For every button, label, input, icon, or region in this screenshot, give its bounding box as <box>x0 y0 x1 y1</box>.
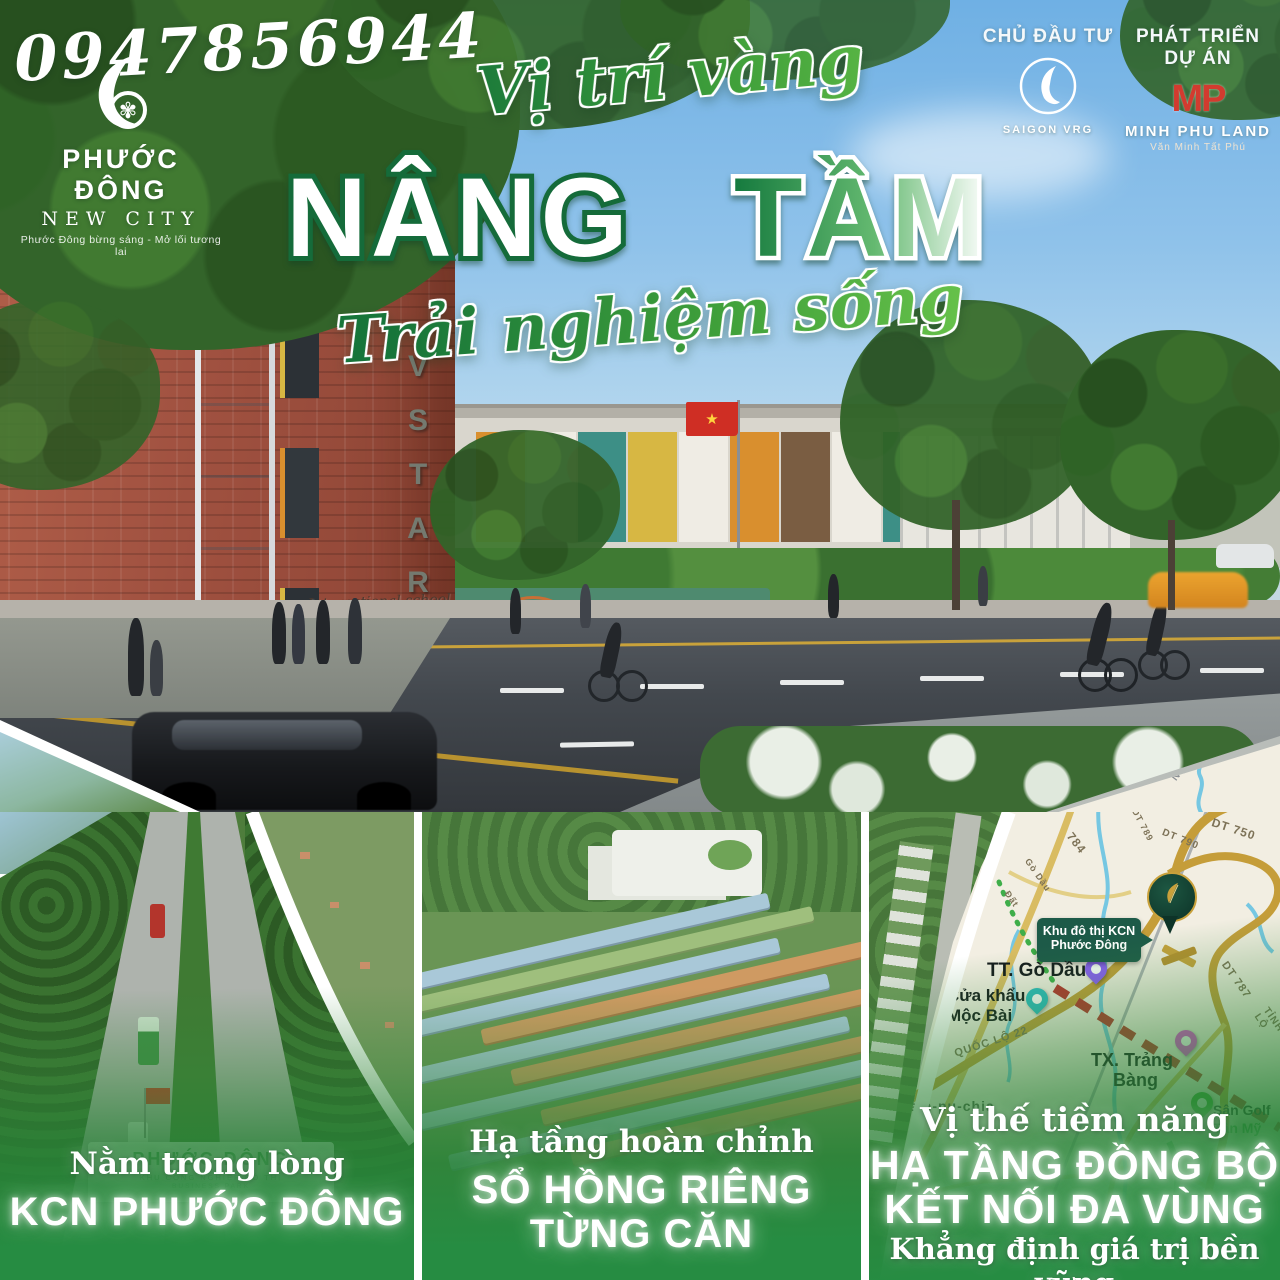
panel-sohong: Hạ tầng hoàn chỉnh SỔ HỒNG RIÊNG TỪNG CĂ… <box>422 812 861 1280</box>
panel-map: 784 DT 789 DT 790 DT 750 DT 787 QUỐC LỘ … <box>869 812 1280 1280</box>
poster: LIBRARY ★ V S T A R International school <box>0 0 1280 1280</box>
lane-dash <box>500 688 564 693</box>
brand-tagline: Phước Đông bừng sáng - Mở lối tương lai <box>16 234 226 258</box>
lane-dash <box>780 680 844 685</box>
bike-wheel <box>1160 650 1190 680</box>
brand-logo: ✾ PHƯỚC ĐÔNG NEW CITY Phước Đông bừng sá… <box>16 52 226 258</box>
vstar-letter: S <box>398 394 438 448</box>
pedestrian <box>150 640 163 696</box>
vstar-sign: V S T A R <box>398 340 438 610</box>
brand-sub: NEW CITY <box>16 208 226 230</box>
developer-tagline: Văn Minh Tất Phú <box>1118 142 1278 153</box>
lane-dash <box>640 684 704 689</box>
lane-dash <box>1200 668 1264 673</box>
black-car <box>132 712 437 810</box>
facade-stripe <box>679 432 728 542</box>
panel-middle-caption2: SỔ HỒNG RIÊNG <box>422 1168 861 1213</box>
facade-stripe <box>628 432 677 542</box>
developer-name: MINH PHU LAND <box>1118 123 1278 140</box>
panel-kcn: PHƯỚC ĐÔNG KHU CÔNG NGHIỆP ĐÔ THỊ BUSINE… <box>0 812 414 1280</box>
investor-name: SAIGON VRG <box>963 124 1133 136</box>
saigon-vrg-logo-icon <box>1018 56 1078 116</box>
car-windshield <box>172 720 362 750</box>
window <box>280 448 319 538</box>
bottom-panels: PHƯỚC ĐÔNG KHU CÔNG NGHIỆP ĐÔ THỊ BUSINE… <box>0 812 1280 1280</box>
tree-trunk <box>952 500 960 610</box>
minh-phu-land-logo-icon: MP <box>1118 78 1278 121</box>
panel-left-caption1: Nằm trong lòng <box>0 1146 414 1182</box>
facade-stripe <box>781 432 830 542</box>
lane-dash <box>920 676 984 681</box>
panel-middle-caption1: Hạ tầng hoàn chỉnh <box>422 1124 861 1160</box>
pedestrian <box>828 574 839 618</box>
bike-wheel <box>1104 658 1138 692</box>
investor-label: CHỦ ĐẦU TƯ <box>963 26 1133 48</box>
pedestrian <box>510 588 521 634</box>
cyclist-body <box>1084 601 1115 667</box>
cyclist-body <box>598 621 624 679</box>
orange-car <box>1148 572 1248 608</box>
developer-label: PHÁT TRIỂN DỰ ÁN <box>1118 26 1278 70</box>
left-sidewalk <box>0 618 450 718</box>
tree-canopy <box>1060 330 1280 540</box>
cyclist <box>1078 600 1130 688</box>
bike-wheel <box>616 670 648 702</box>
panel-middle-caption3: TỪNG CĂN <box>422 1212 861 1257</box>
hero-scene: LIBRARY ★ V S T A R International school <box>0 0 1280 812</box>
panel-right-caption2: HẠ TẦNG ĐỒNG BỘ <box>869 1142 1280 1189</box>
cyclist <box>588 622 644 700</box>
pedestrian <box>978 566 988 606</box>
headline-word1: NÂNG <box>286 155 632 280</box>
pedestrian <box>292 604 305 664</box>
pedestrian <box>272 602 286 664</box>
lotus-icon: ✾ <box>80 52 162 144</box>
vietnam-flag: ★ <box>686 402 738 436</box>
pedestrian <box>348 598 362 664</box>
tree-trunk <box>1168 520 1175 610</box>
panel-left-caption2: KCN PHƯỚC ĐÔNG <box>0 1190 414 1235</box>
brand-name: PHƯỚC ĐÔNG <box>16 144 226 206</box>
panel-right-caption1: Vị thế tiềm năng <box>869 1100 1280 1139</box>
white-suv <box>1216 544 1274 568</box>
panel-right-caption3: KẾT NỐI ĐA VÙNG <box>869 1186 1280 1233</box>
investor-block: CHỦ ĐẦU TƯ SAIGON VRG <box>963 26 1133 136</box>
cyclist <box>1138 600 1184 676</box>
car-wheel <box>357 782 411 810</box>
panel-right-caption4: Khẳng định giá trị bền vững <box>869 1232 1280 1280</box>
pedestrian <box>316 600 330 664</box>
pedestrian <box>128 618 144 696</box>
svg-text:✾: ✾ <box>119 98 137 123</box>
developer-block: PHÁT TRIỂN DỰ ÁN MP MINH PHU LAND Văn Mi… <box>1118 26 1278 153</box>
